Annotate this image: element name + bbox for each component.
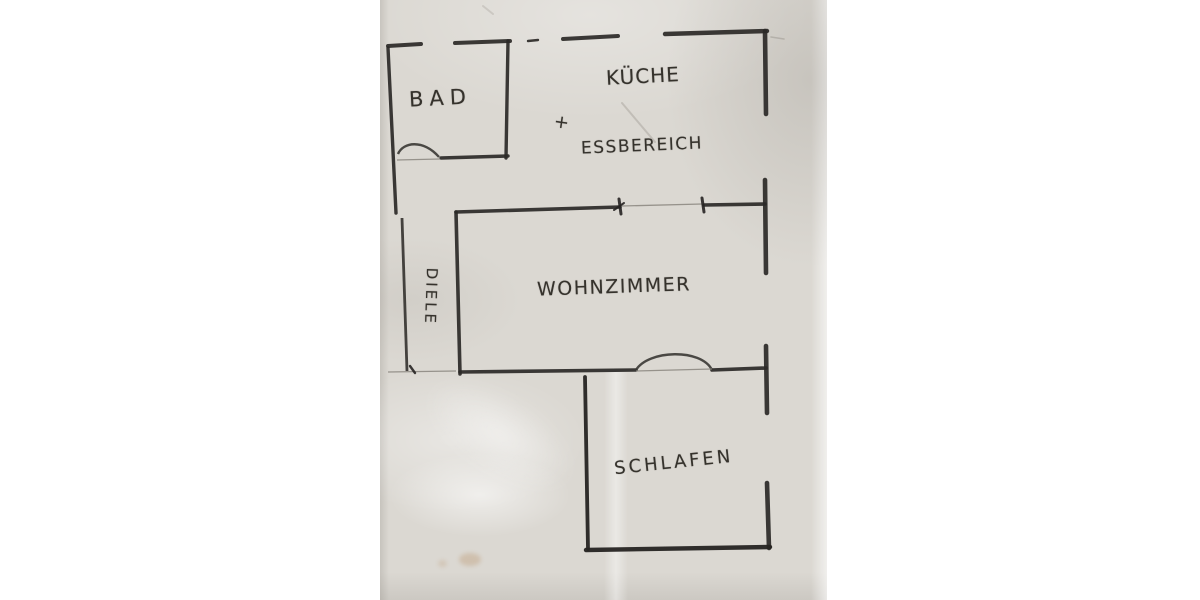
paper-stain-small bbox=[438, 560, 447, 567]
paper-stain bbox=[459, 553, 481, 566]
label-plus-sign: + bbox=[553, 111, 571, 134]
room-label-diele: DIELE bbox=[421, 267, 441, 326]
floorplan-photo: BAD KÜCHE + ESSBEREICH WOHNZIMMER DIELE … bbox=[0, 0, 1200, 600]
room-label-kueche: KÜCHE bbox=[605, 62, 680, 90]
paper-crease bbox=[604, 372, 628, 600]
room-label-bad: BAD bbox=[408, 84, 472, 111]
